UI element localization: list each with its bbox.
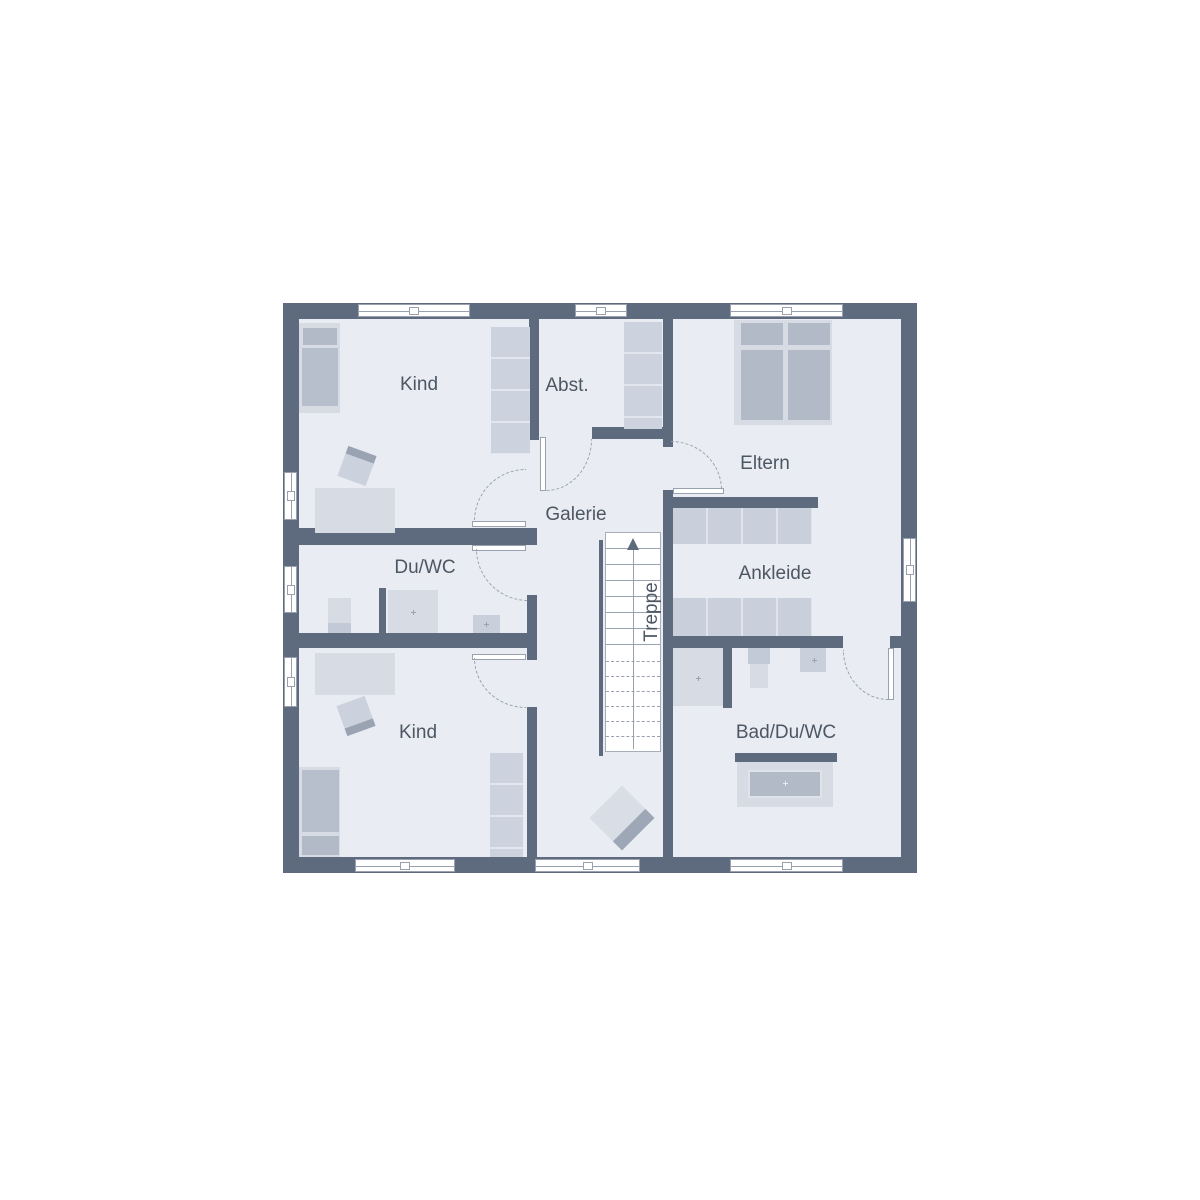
window-bottom-1 xyxy=(355,859,455,872)
room-label-ankleide: Ankleide xyxy=(739,563,812,585)
wall-duwc-bottom xyxy=(299,633,527,648)
window-top-2 xyxy=(575,304,627,317)
wall-center-vertical xyxy=(663,490,673,857)
window-top-3 xyxy=(730,304,843,317)
wall-abst-eltern xyxy=(663,319,673,447)
room-label-kind-top: Kind xyxy=(400,374,438,396)
stair-walkline xyxy=(633,549,634,749)
window-left-3 xyxy=(284,657,297,707)
wall-corridor-upper xyxy=(527,595,537,660)
stairs-up-arrow-icon xyxy=(627,538,639,550)
room-label-treppe: Treppe xyxy=(641,582,663,642)
wall-kind-abst xyxy=(529,319,539,440)
wall-ankleide-bottom xyxy=(673,636,843,648)
shower-drain-mark xyxy=(696,676,701,681)
door-leaf-bad xyxy=(888,648,894,700)
wall-ankleide-top xyxy=(673,497,818,508)
sink-drain-mark xyxy=(484,622,489,627)
window-left-2 xyxy=(284,566,297,613)
toilet-bowl-bad xyxy=(750,664,768,688)
wall-corridor-lower xyxy=(527,707,537,857)
window-bottom-3 xyxy=(730,859,843,872)
shelf-abstellraum xyxy=(624,322,662,429)
bed-mattress-eltern-right xyxy=(788,350,830,420)
window-right-1 xyxy=(903,538,916,602)
toilet-tank-duwc xyxy=(328,623,351,633)
window-left-1 xyxy=(284,472,297,520)
staircase xyxy=(605,532,661,752)
room-label-duwc: Du/WC xyxy=(394,557,455,579)
bed-pillow-kind-bottom xyxy=(302,836,339,855)
wardrobe-ankleide-top xyxy=(673,508,812,544)
room-label-eltern: Eltern xyxy=(740,453,790,475)
window-bottom-2 xyxy=(535,859,640,872)
room-label-bad: Bad/Du/WC xyxy=(736,722,836,744)
bed-pillow-eltern-right xyxy=(788,323,830,345)
bathtub-drain-mark xyxy=(783,781,788,786)
floor-plan: Kind Abst. Eltern Galerie Du/WC Ankleide… xyxy=(283,303,917,873)
wall-bathtub-back xyxy=(735,753,837,762)
wardrobe-kind-top xyxy=(491,327,530,454)
desk-kind-bottom xyxy=(315,653,395,695)
wardrobe-kind-bottom xyxy=(490,753,523,857)
toilet-tank-bad xyxy=(748,648,770,664)
wall-shower-partition-duwc xyxy=(379,588,386,633)
bed-mattress-kind-bottom xyxy=(302,770,339,832)
room-label-kind-bottom: Kind xyxy=(399,722,437,744)
sink-drain-mark xyxy=(812,658,817,663)
toilet-bowl-duwc xyxy=(328,598,351,623)
bed-mattress-eltern-left xyxy=(741,350,783,420)
stair-stringer xyxy=(599,540,603,756)
shower-drain-mark xyxy=(411,610,416,615)
window-top-1 xyxy=(358,304,470,317)
bed-pillow-kind-top xyxy=(303,328,337,345)
wardrobe-ankleide-bottom xyxy=(673,598,812,636)
room-label-galerie: Galerie xyxy=(545,504,606,526)
door-leaf-kind-top xyxy=(472,521,526,527)
bed-pillow-eltern-left xyxy=(741,323,783,345)
bed-mattress-kind-top xyxy=(302,348,338,406)
room-label-abstellraum: Abst. xyxy=(545,375,588,397)
wall-shower-partition-bad xyxy=(723,638,732,708)
desk-kind-top xyxy=(315,488,395,533)
wall-bad-door-stub xyxy=(890,636,901,648)
